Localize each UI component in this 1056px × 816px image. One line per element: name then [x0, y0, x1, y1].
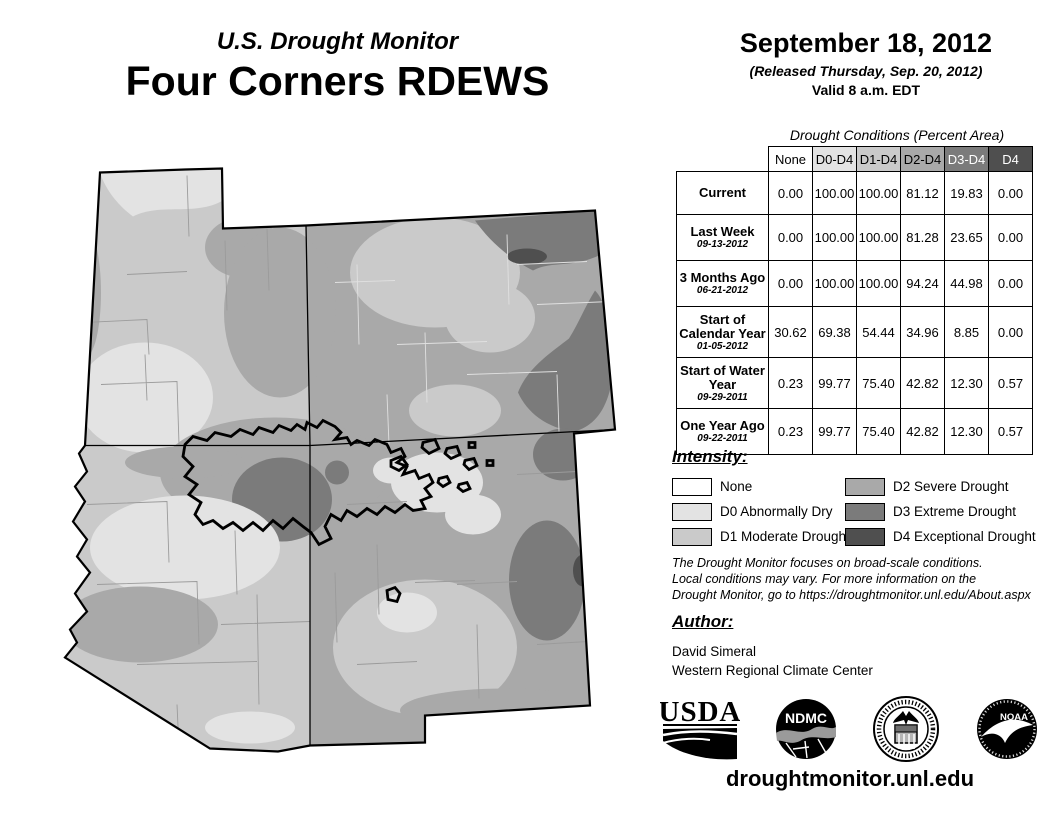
- map-date: September 18, 2012: [690, 28, 1042, 59]
- disclaimer-text: The Drought Monitor focuses on broad-sca…: [672, 555, 1052, 603]
- table-cell: 100.00: [857, 172, 901, 215]
- table-cell: 0.57: [989, 358, 1033, 409]
- none-swatch: [672, 478, 712, 496]
- table-cell: 100.00: [813, 215, 857, 261]
- table-row-last-week: Last Week09-13-2012 0.00 100.00 100.00 8…: [677, 215, 1033, 261]
- table-caption: Drought Conditions (Percent Area): [766, 127, 1028, 143]
- table-row-current: Current 0.00 100.00 100.00 81.12 19.83 0…: [677, 172, 1033, 215]
- table-cell: 23.65: [945, 215, 989, 261]
- legend-item-d1: D1 Moderate Drought: [672, 524, 845, 549]
- drought-conditions-table: None D0-D4 D1-D4 D2-D4 D3-D4 D4 Current …: [676, 146, 1033, 455]
- table-cell: 81.12: [901, 172, 945, 215]
- d4-swatch: [845, 528, 885, 546]
- column-header-d4: D4: [989, 147, 1033, 172]
- column-header-d3: D3-D4: [945, 147, 989, 172]
- d1-swatch: [672, 528, 712, 546]
- table-cell: 19.83: [945, 172, 989, 215]
- author-heading: Author:: [672, 612, 1052, 632]
- date-block: September 18, 2012 (Released Thursday, S…: [690, 28, 1042, 98]
- legend-item-d0: D0 Abnormally Dry: [672, 499, 845, 524]
- table-cell: 0.00: [769, 215, 813, 261]
- legend-item-d2: D2 Severe Drought: [845, 474, 1040, 499]
- table-cell: 44.98: [945, 261, 989, 307]
- legend-item-d3: D3 Extreme Drought: [845, 499, 1040, 524]
- table-cell: 99.77: [813, 358, 857, 409]
- svg-text:NDMC: NDMC: [785, 710, 827, 726]
- row-label: 3 Months Ago06-21-2012: [677, 261, 769, 307]
- row-label: Last Week09-13-2012: [677, 215, 769, 261]
- table-cell: 54.44: [857, 307, 901, 358]
- legend-heading: Intensity:: [672, 447, 1040, 467]
- table-cell: 100.00: [813, 261, 857, 307]
- svg-text:USDA: USDA: [660, 696, 740, 728]
- table-cell: 0.00: [989, 307, 1033, 358]
- table-cell: 12.30: [945, 358, 989, 409]
- table-cell: 0.00: [989, 261, 1033, 307]
- agency-logos: USDA NDMC NOAA: [660, 693, 1040, 765]
- table-cell: 100.00: [857, 261, 901, 307]
- row-label: Start of Calendar Year01-05-2012: [677, 307, 769, 358]
- table-corner-cell: [677, 147, 769, 172]
- legend-item-d4: D4 Exceptional Drought: [845, 524, 1040, 549]
- report-supertitle: U.S. Drought Monitor: [110, 28, 565, 56]
- table-cell: 0.00: [769, 172, 813, 215]
- usda-logo: USDA: [660, 695, 740, 763]
- table-cell: 94.24: [901, 261, 945, 307]
- table-cell: 0.00: [989, 172, 1033, 215]
- table-cell: 75.40: [857, 358, 901, 409]
- author-name: David Simeral: [672, 642, 1052, 661]
- table-row-start-calendar-year: Start of Calendar Year01-05-2012 30.62 6…: [677, 307, 1033, 358]
- table-cell: 30.62: [769, 307, 813, 358]
- table-cell: 8.85: [945, 307, 989, 358]
- d0-swatch: [672, 503, 712, 521]
- d2-swatch: [845, 478, 885, 496]
- legend-item-none: None: [672, 474, 845, 499]
- noaa-logo: NOAA: [974, 695, 1040, 763]
- drought-shading: [35, 143, 655, 798]
- table-cell: 0.00: [989, 215, 1033, 261]
- column-header-d0: D0-D4: [813, 147, 857, 172]
- svg-text:NOAA: NOAA: [1000, 712, 1028, 723]
- table-row-start-water-year: Start of Water Year09-29-2011 0.23 99.77…: [677, 358, 1033, 409]
- table-cell: 42.82: [901, 358, 945, 409]
- valid-time: Valid 8 a.m. EDT: [690, 82, 1042, 98]
- footer-url: droughtmonitor.unl.edu: [660, 766, 1040, 792]
- column-header-d2: D2-D4: [901, 147, 945, 172]
- row-label: Current: [677, 172, 769, 215]
- column-header-d1: D1-D4: [857, 147, 901, 172]
- ndmc-logo: NDMC: [773, 695, 839, 763]
- table-cell: 34.96: [901, 307, 945, 358]
- table-cell: 100.00: [857, 215, 901, 261]
- column-header-none: None: [769, 147, 813, 172]
- drought-monitor-report: U.S. Drought Monitor Four Corners RDEWS …: [0, 0, 1056, 816]
- table-cell: 81.28: [901, 215, 945, 261]
- table-cell: 0.00: [769, 261, 813, 307]
- four-corners-map: [35, 140, 655, 800]
- intensity-legend: Intensity: None D0 Abnormally Dry D1 Mod…: [672, 447, 1040, 549]
- page-title: Four Corners RDEWS: [80, 58, 595, 105]
- table-cell: 0.23: [769, 358, 813, 409]
- map-svg: [35, 140, 655, 800]
- commerce-seal: [871, 695, 941, 763]
- table-cell: 100.00: [813, 172, 857, 215]
- author-org: Western Regional Climate Center: [672, 661, 1052, 680]
- d3-swatch: [845, 503, 885, 521]
- table-header-row: None D0-D4 D1-D4 D2-D4 D3-D4 D4: [677, 147, 1033, 172]
- row-label: Start of Water Year09-29-2011: [677, 358, 769, 409]
- released-date: (Released Thursday, Sep. 20, 2012): [690, 63, 1042, 79]
- table-row-3-months-ago: 3 Months Ago06-21-2012 0.00 100.00 100.0…: [677, 261, 1033, 307]
- table-cell: 69.38: [813, 307, 857, 358]
- author-block: Author: David Simeral Western Regional C…: [672, 612, 1052, 680]
